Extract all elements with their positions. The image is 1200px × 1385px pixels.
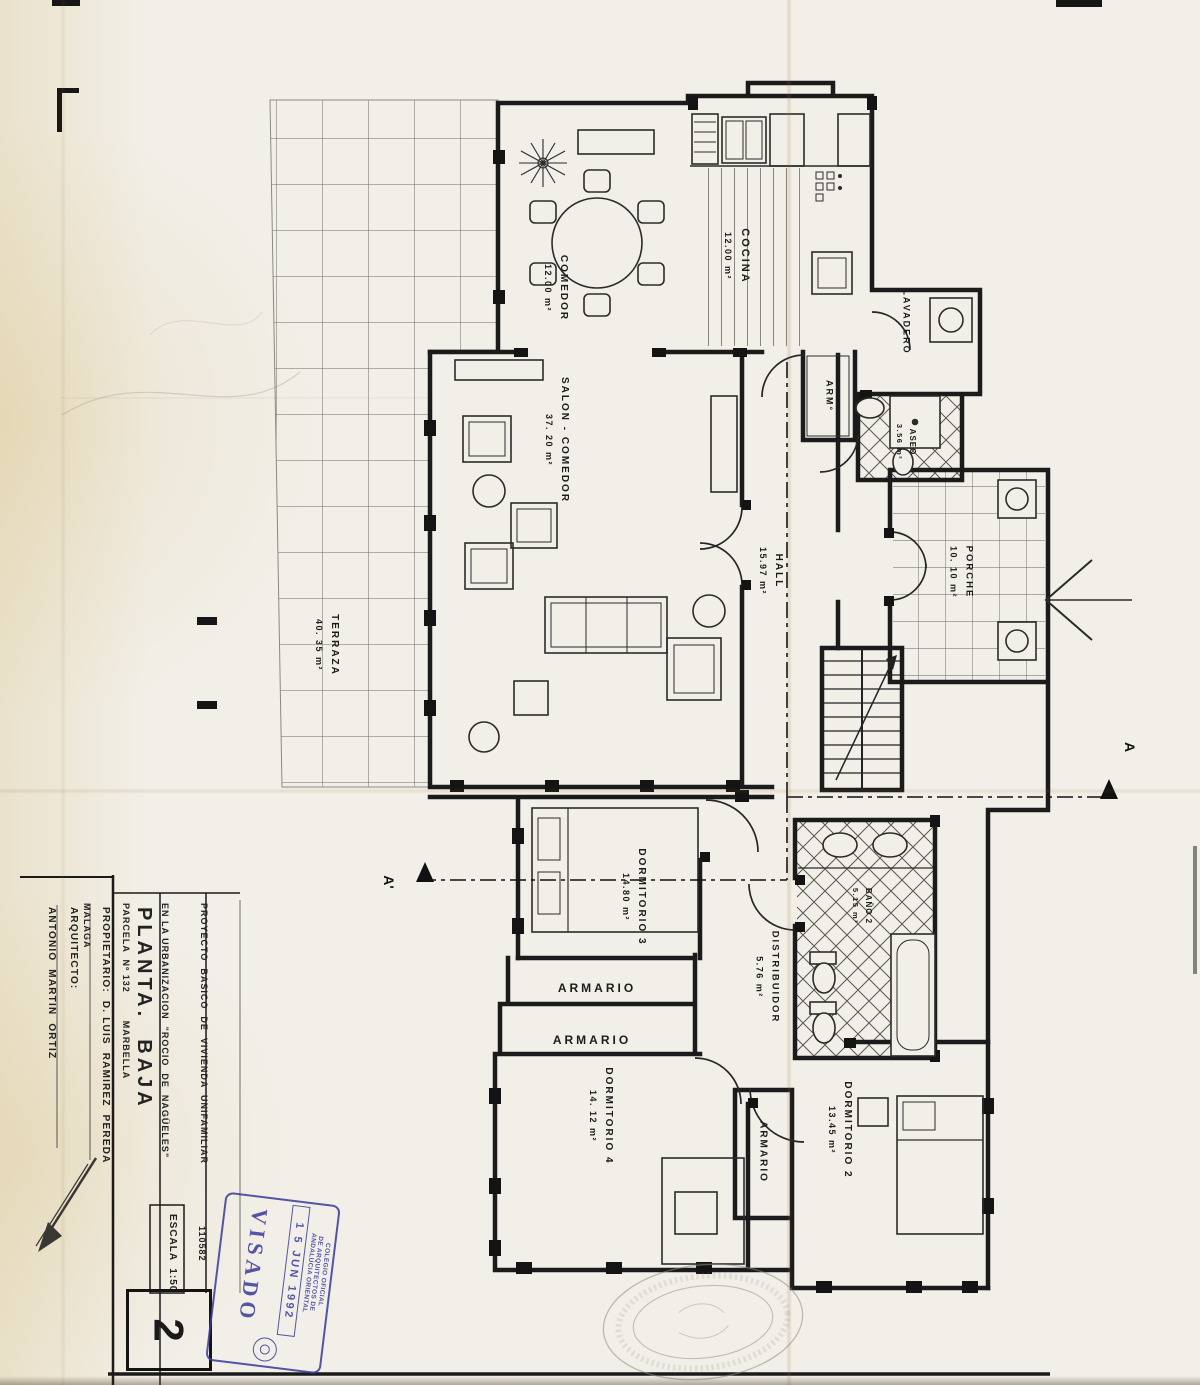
project-line: MALAGA	[80, 903, 93, 1164]
oval-seal-stamp	[598, 1255, 809, 1385]
closet-label-armario-1: ARMARIO	[558, 981, 636, 995]
scanned-floor-plan-sheet: COCINA12.00 m² COMEDOR12.00 m² SALON - C…	[0, 0, 1200, 1385]
north-arrow	[36, 1158, 96, 1252]
architect-name: ANTONIO MARTIN ORTIZ	[46, 907, 57, 1059]
room-label-porche: PORCHE10. 10 m²	[945, 546, 976, 599]
scale-label: ESCALA 1:50	[167, 1214, 178, 1292]
project-line: PROYECTO BASICO DE VIVIENDA UNIFAMILIAR	[197, 903, 210, 1164]
sheet-number: 2	[145, 1318, 193, 1341]
room-label-dormitorio-3: DORMITORIO 314.80 m²	[618, 848, 650, 945]
kitchen-symbols	[816, 172, 842, 201]
closet-label-armario-2: ARMARIO	[553, 1033, 631, 1047]
room-label-dormitorio-2: DORMITORIO 213.45 m²	[824, 1081, 856, 1178]
fold-crease	[60, 0, 66, 1385]
visado-stamp-border: COLEGIO OFICIAL DE ARQUITECTOS DE ANDALU…	[205, 1192, 341, 1375]
room-label-hall: HALL15.97 m²	[755, 547, 787, 595]
section-label-a-prime: A'	[381, 875, 397, 888]
architect-label: ARQUITECTO:	[68, 907, 79, 989]
room-label-lavadero: LAVADERO	[898, 289, 913, 354]
fold-crease	[0, 788, 1200, 794]
owner-line: PROPIETARIO: D. LUIS RAMIREZ PEREDA	[100, 907, 111, 1164]
scan-edge-shadow	[0, 1376, 1200, 1385]
floor-tiles	[270, 100, 1045, 1056]
plant-icon	[519, 139, 567, 187]
project-line: PARCELA Nº 132 MARBELLA	[119, 903, 132, 1164]
visado-stamp: COLEGIO OFICIAL DE ARQUITECTOS DE ANDALU…	[205, 1192, 341, 1375]
room-label-dormitorio-4: DORMITORIO 414. 12 m²	[585, 1067, 617, 1164]
closet-label-armario-3: ARMARIO	[755, 1121, 772, 1183]
room-label-bano-2: BAÑO 25.15 m²	[849, 888, 875, 924]
room-label-distribuidor: DISTRIBUIDOR5.76 m²	[751, 931, 782, 1024]
room-label-armario-hall: ARM°	[821, 380, 836, 412]
floor-plan-drawing	[0, 0, 1200, 1385]
section-label-a: A	[1122, 742, 1138, 752]
stamp-emblem-icon	[251, 1336, 278, 1363]
room-label-cocina: COCINA12.00 m²	[720, 228, 754, 283]
project-line: EN LA URBANIZACION "ROCIO DE NAGÜELES"	[158, 903, 171, 1164]
room-label-salon-comedor: SALON - COMEDOR37. 20 m²	[541, 377, 573, 503]
sheet-number-box: 2	[126, 1289, 212, 1371]
fold-crease	[786, 0, 792, 1385]
room-label-aseo: ASEO3.56 m²	[893, 424, 919, 460]
room-label-comedor: COMEDOR12.00 m²	[540, 255, 572, 321]
room-label-terraza: TERRAZA40. 35 m²	[311, 614, 343, 676]
file-number: 110582	[197, 1226, 207, 1262]
stairs	[824, 648, 900, 790]
plan-title: PLANTA. BAJA	[132, 907, 155, 1110]
